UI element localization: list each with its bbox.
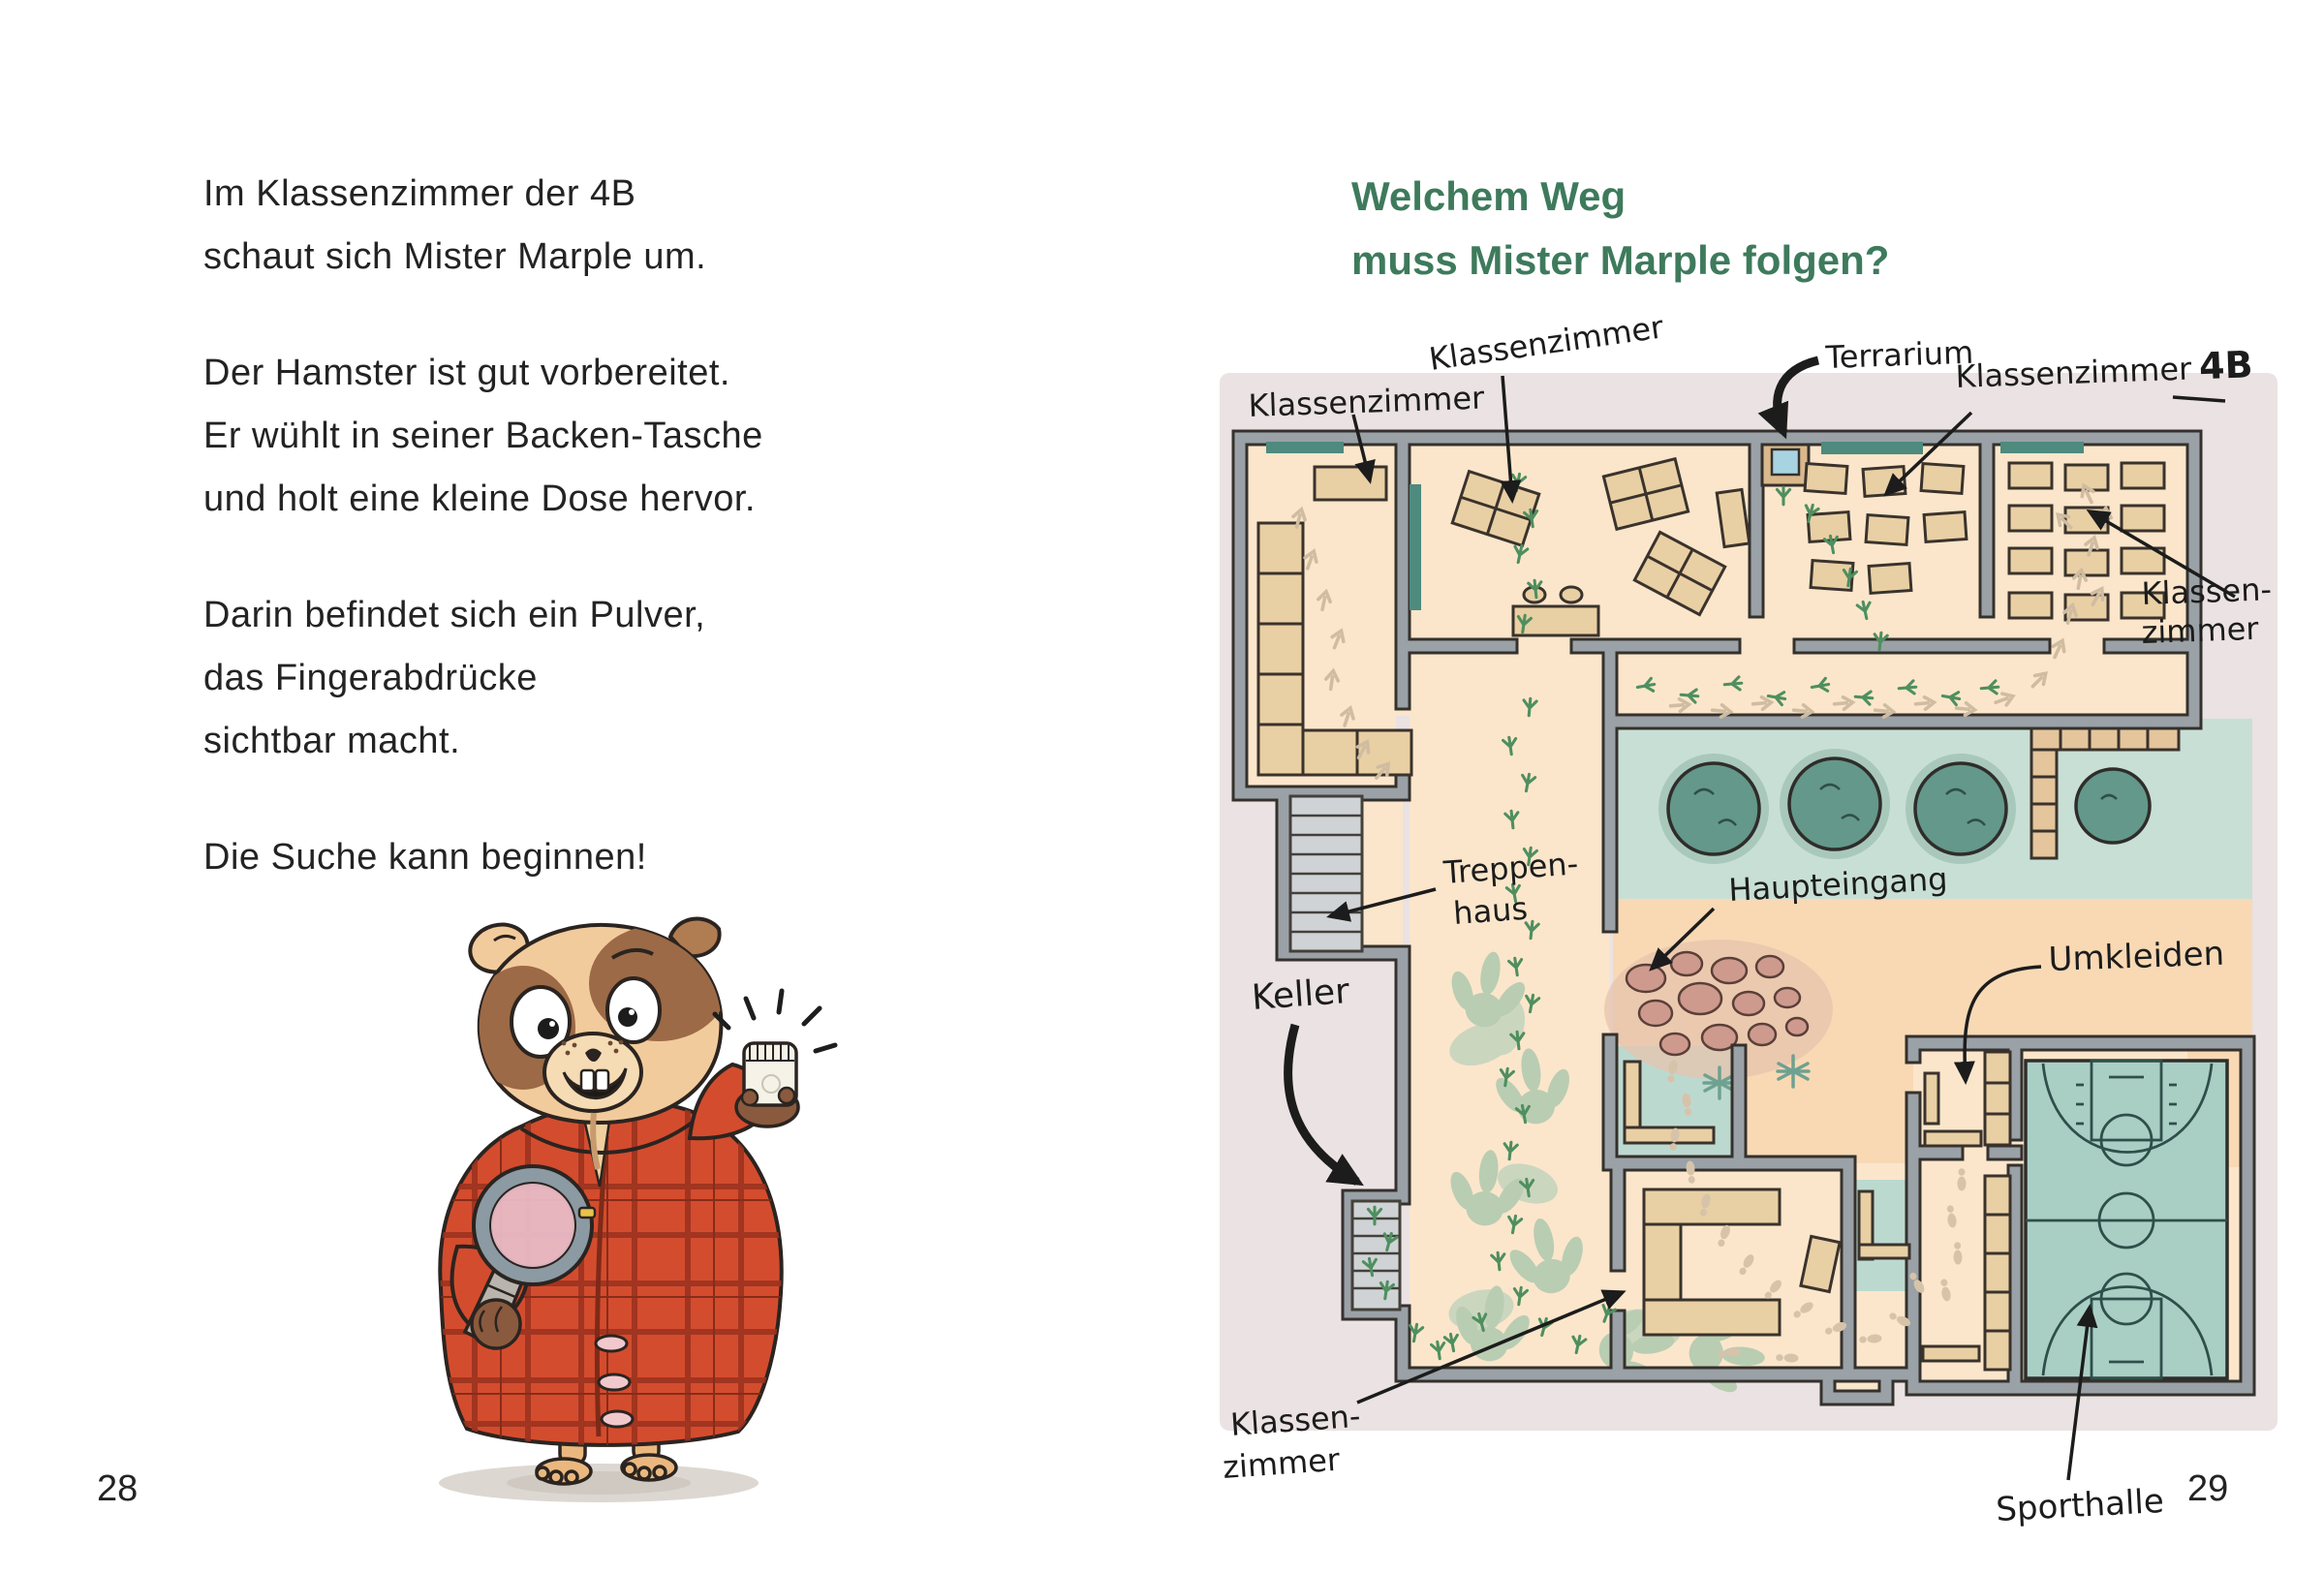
- page-number-right: 29: [2187, 1468, 2228, 1510]
- map-label-klassenzimmer-top-mid: Klassenzimmer: [1427, 320, 1666, 378]
- terrarium-box: [1762, 445, 1809, 485]
- story-line: Er wühlt in seiner Backen-Tasche: [203, 405, 763, 468]
- page-title: Welchem Weg muss Mister Marple folgen?: [1351, 165, 1889, 293]
- map-label-klassenzimmer-bottom-line2: zimmer: [1222, 1441, 1342, 1486]
- story-line: Im Klassenzimmer der 4B: [203, 163, 763, 226]
- page-number-left: 28: [97, 1468, 138, 1510]
- story-line: Der Hamster ist gut vorbereitet.: [203, 342, 763, 405]
- story-line: Die Suche kann beginnen!: [203, 826, 763, 889]
- map-label-umkleiden: Umkleiden: [2048, 935, 2225, 979]
- story-line: das Fingerabdrücke: [203, 647, 763, 710]
- hamster-detective-illustration: [349, 906, 862, 1526]
- map-label-4b-class: 4B: [2198, 343, 2253, 387]
- map-label-klassenzimmer-bottom-line1: Klassen-: [1229, 1398, 1362, 1443]
- stone-path: [1604, 940, 1833, 1079]
- story-paragraph: Der Hamster ist gut vorbereitet. Er wühl…: [203, 342, 763, 531]
- map-label-treppenhaus-line2: haus: [1452, 890, 1529, 932]
- story-line: Darin befindet sich ein Pulver,: [203, 584, 763, 647]
- page-title-line2: muss Mister Marple folgen?: [1351, 229, 1889, 293]
- page-title-line1: Welchem Weg: [1351, 165, 1889, 229]
- map-label-klassenzimmer-right-line1: Klassen-: [2141, 571, 2273, 612]
- story-line: und holt eine kleine Dose hervor.: [203, 468, 763, 531]
- basketball-court: [2026, 1061, 2227, 1378]
- story-paragraph: Im Klassenzimmer der 4B schaut sich Mist…: [203, 163, 763, 289]
- story-paragraph: Die Suche kann beginnen!: [203, 826, 763, 889]
- treppenhaus-stairs: [1290, 796, 1362, 951]
- story-paragraph: Darin befindet sich ein Pulver, das Fing…: [203, 584, 763, 773]
- map-label-terrarium: Terrarium: [1824, 334, 1974, 376]
- floor-plan-map: Klassenzimmer Klassenzimmer Terrarium Kl…: [1191, 320, 2324, 1550]
- story-line: schaut sich Mister Marple um.: [203, 226, 763, 289]
- map-label-keller: Keller: [1251, 972, 1351, 1018]
- map-label-klassenzimmer-right-line2: zimmer: [2141, 610, 2260, 651]
- story-line: sichtbar macht.: [203, 710, 763, 773]
- map-label-sporthalle: Sporthalle: [1995, 1482, 2164, 1529]
- story-text: Im Klassenzimmer der 4B schaut sich Mist…: [203, 163, 763, 942]
